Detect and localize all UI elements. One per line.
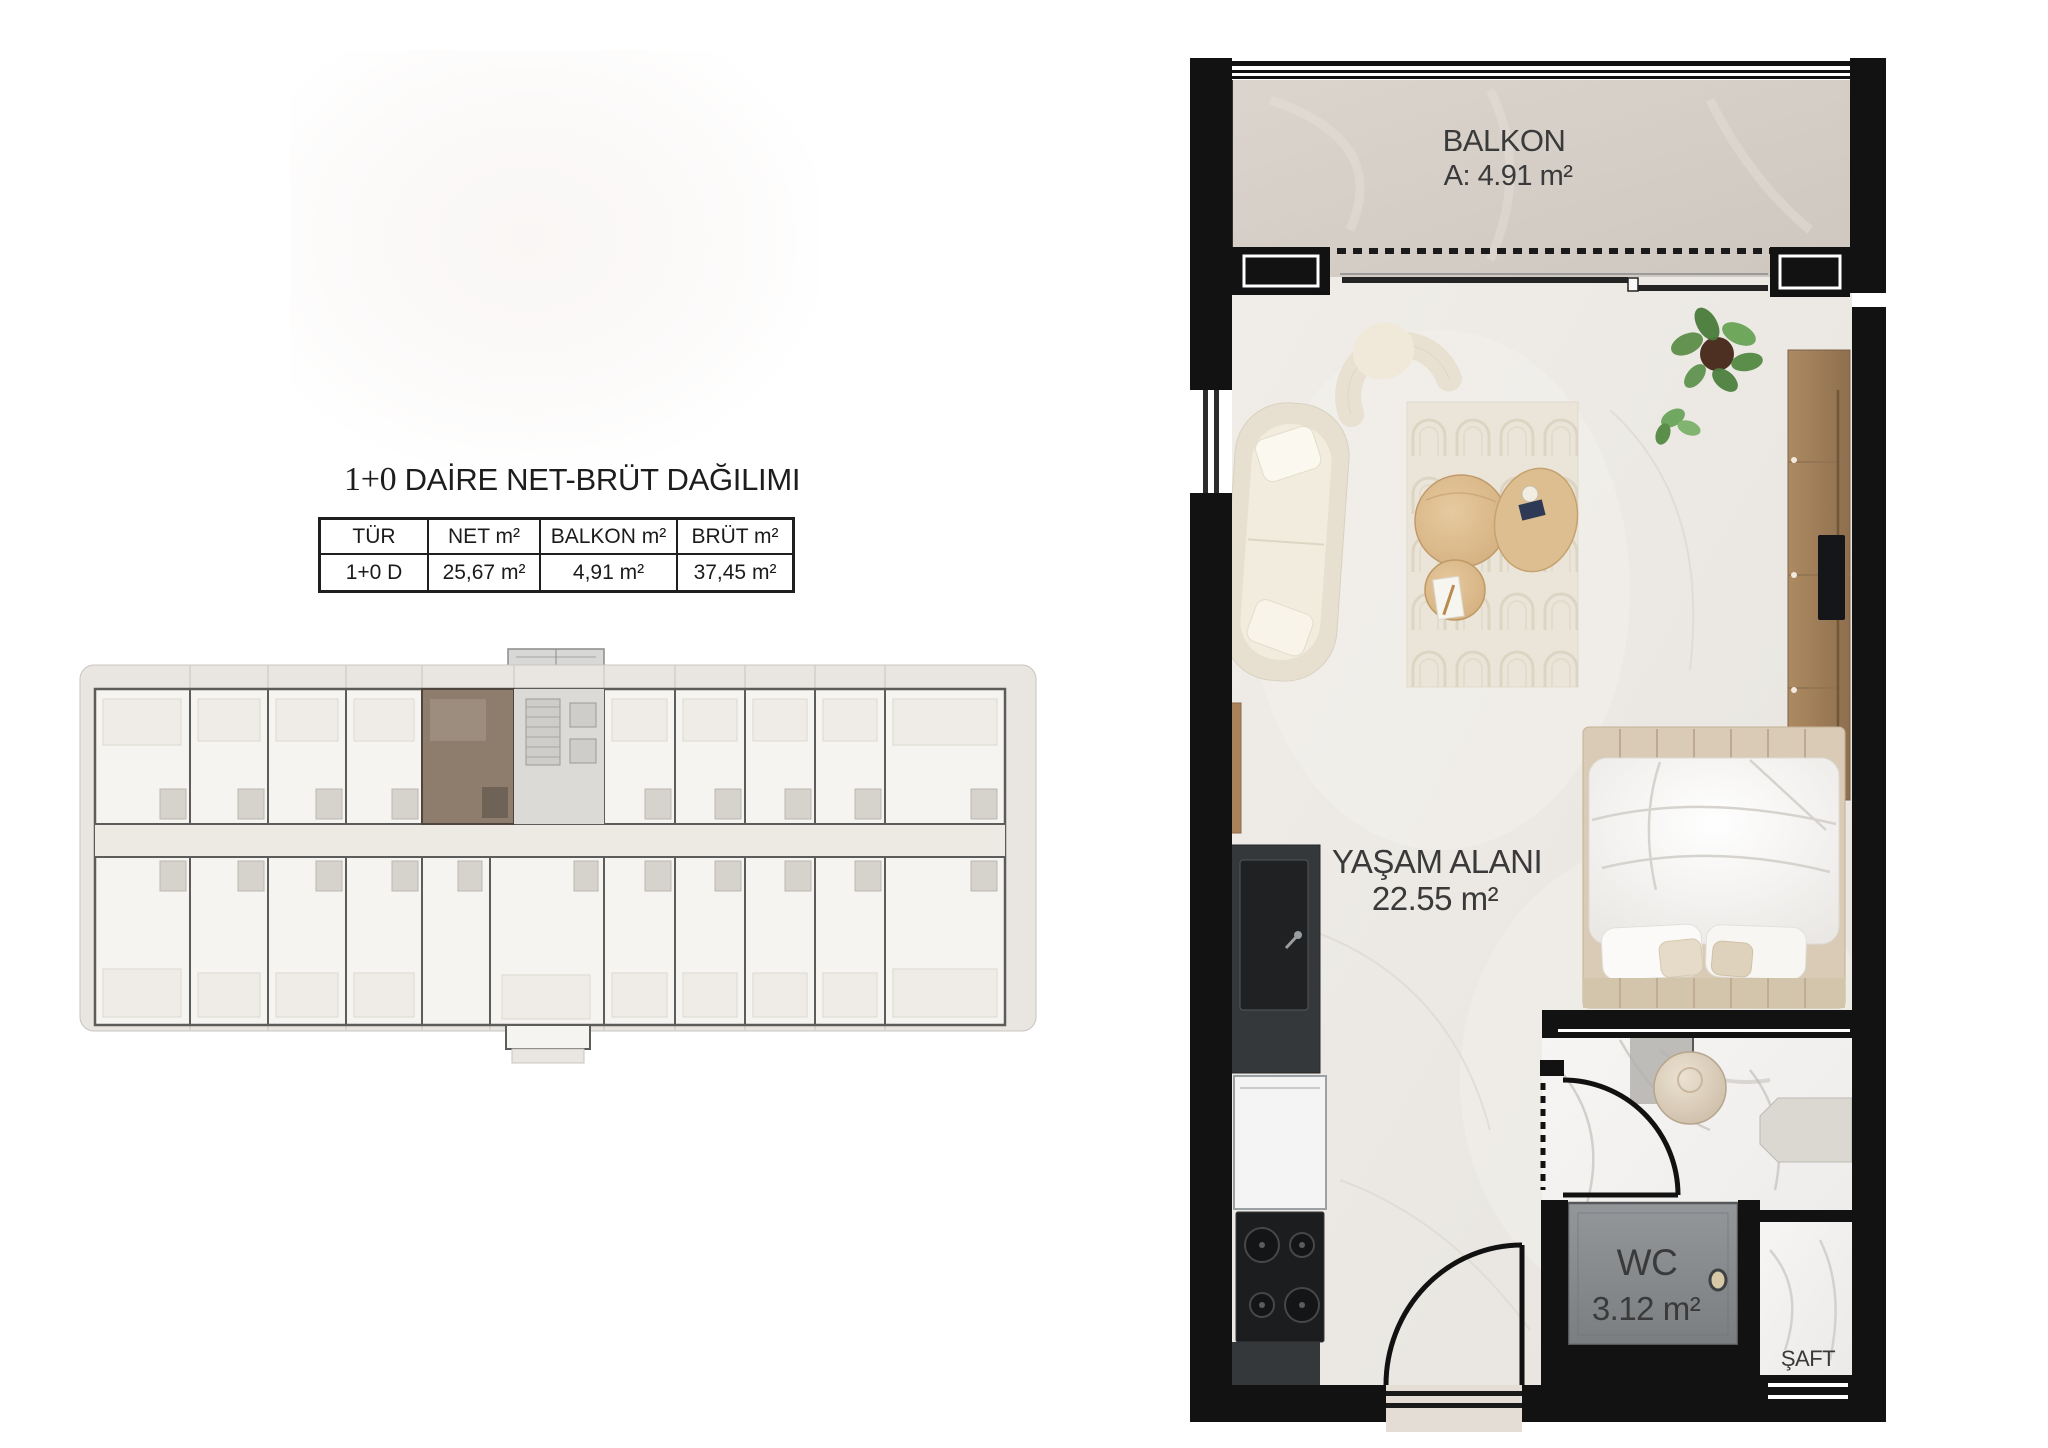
bathroom-left-wall [1541,1200,1568,1345]
cooktop [1236,1212,1324,1342]
page-title: 1+0 DAİRE NET-BRÜT DAĞILIMI [344,461,784,499]
fridge [1234,1076,1326,1209]
wall-bottom-left [1190,1385,1386,1422]
cell-balcony-area: 4,91 m² [540,554,677,592]
living-area-size-label: 22.55 m² [1372,880,1499,917]
page-title-prefix: 1+0 [344,461,396,498]
balcony-area-label: A: 4.91 m² [1444,160,1574,192]
key-plan-core [514,689,604,824]
cell-gross-area: 37,45 m² [677,554,794,592]
wall-left-lower [1190,500,1232,1385]
entrance-threshold [1386,1391,1522,1396]
bed [1583,727,1845,1008]
wall-right-upper [1850,58,1886,293]
shower-drain [1710,1270,1726,1290]
wall-left-upper [1190,58,1232,383]
stone-washbasin [1654,1052,1726,1124]
window-left [1190,383,1232,500]
col-header-brut: BRÜT m² [677,519,794,555]
bathroom-door-stub [1540,1060,1564,1076]
key-plan-corridor [95,824,1005,857]
sofa [1219,399,1352,684]
living-area-label: YAŞAM ALANI [1332,843,1542,880]
unit-floor-plan: BALKON A: 4.91 m² YAŞAM ALANI 22.55 m² W… [1190,30,1890,1432]
cell-unit-type: 1+0 D [320,554,429,592]
wall-right-lower [1852,307,1886,1422]
key-plan-highlighted-unit [422,689,514,824]
faint-watermark [290,50,820,470]
area-distribution-table: TÜR NET m² BALKON m² BRÜT m² 1+0 D 25,67… [318,517,795,593]
wc-area-label: 3.12 m² [1592,1290,1701,1327]
cell-net-area: 25,67 m² [428,554,540,592]
shaft-label: ŞAFT [1781,1346,1835,1371]
table-header-row: TÜR NET m² BALKON m² BRÜT m² [320,519,794,555]
bath-counter [1760,1098,1852,1162]
key-plan-bottom-extension [506,1025,590,1063]
col-header-balkon: BALKON m² [540,519,677,555]
wc-label: WC [1617,1242,1678,1283]
wall-under-shower [1541,1345,1760,1387]
col-header-net: NET m² [428,519,540,555]
col-header-tur: TÜR [320,519,429,555]
balcony-label: BALKON [1443,123,1566,158]
page-root: 1+0 DAİRE NET-BRÜT DAĞILIMI TÜR NET m² B… [0,0,2048,1448]
building-key-plan [78,645,1040,1085]
page-title-rest: DAİRE NET-BRÜT DAĞILIMI [396,462,800,497]
table-row: 1+0 D 25,67 m² 4,91 m² 37,45 m² [320,554,794,592]
tv [1818,535,1845,620]
bathroom-top-wall [1542,1010,1852,1038]
